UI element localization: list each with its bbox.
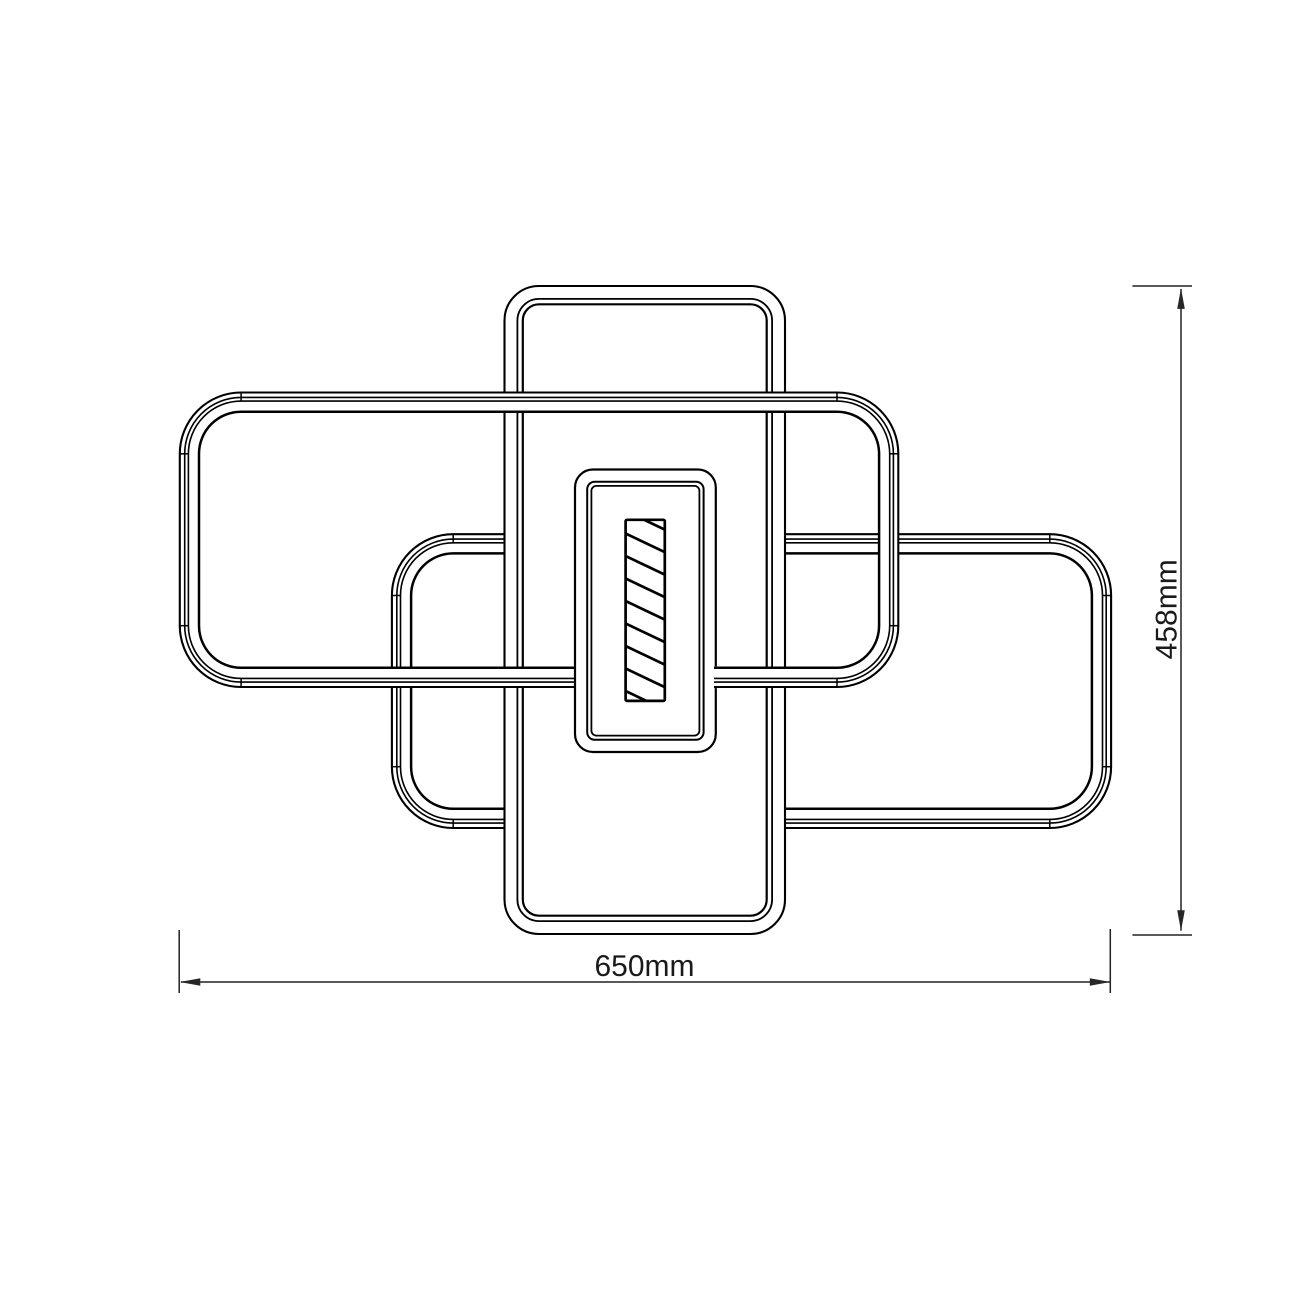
svg-text:650mm: 650mm: [594, 950, 694, 983]
svg-text:458mm: 458mm: [1151, 559, 1184, 659]
